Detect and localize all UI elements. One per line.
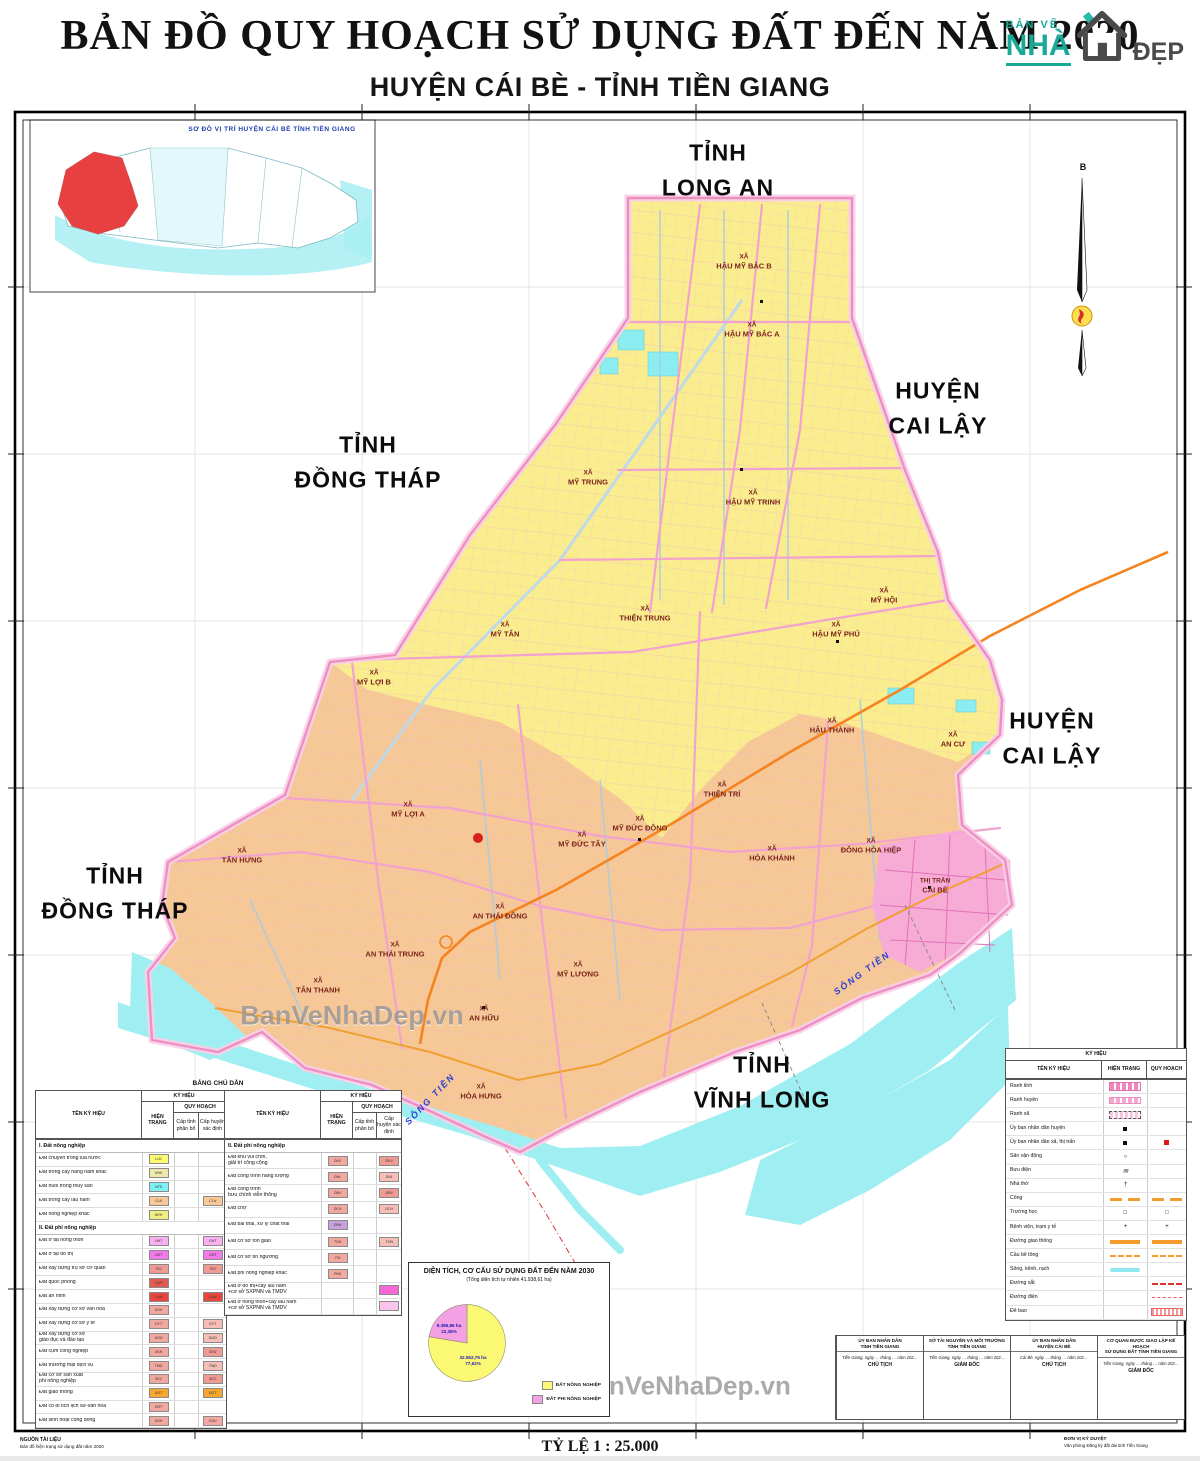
pie-legend-nonagri: ĐẤT PHI NÔNG NGHIỆP: [532, 1395, 601, 1404]
footer-right: ĐƠN VỊ KÝ DUYỆT Văn phòng Đăng ký đất đa…: [1064, 1437, 1182, 1448]
symbol-row: Ủy ban nhân dân xã, thị trấn: [1006, 1136, 1186, 1150]
page-bottom-strip: [0, 1456, 1200, 1461]
watermark-map: BanVeNhaDep.vn: [240, 1001, 464, 1032]
legend-row: Đất nuôi trồng thủy sản NTS NTS: [36, 1181, 226, 1195]
region-label: TỈNH VĨNH LONG: [694, 1048, 831, 1117]
map-scale: TỶ LỆ 1 : 25.000: [0, 1438, 1200, 1456]
symbol-row: Đường giao thông: [1006, 1235, 1186, 1249]
agri-swatch: [542, 1381, 553, 1390]
chart-title: DIỆN TÍCH, CƠ CẤU SỬ DỤNG ĐẤT ĐẾN NĂM 20…: [409, 1268, 609, 1275]
legend-row: Đất thương mại dịch vụ TMD TMD: [36, 1359, 226, 1373]
legend-row: Đất giao thông DGT DGT: [36, 1387, 226, 1401]
legend-row: Đất ở tại nông thôn ONT ONT: [36, 1235, 226, 1249]
legend-caption: BẢNG CHÚ DẪN: [193, 1080, 244, 1087]
symbol-row: Đê bao: [1006, 1306, 1186, 1320]
symbol-row: Ranh huyện: [1006, 1094, 1186, 1108]
chart-subtitle: (Tổng diện tích tự nhiên 41.938,61 ha): [409, 1277, 609, 1283]
symbol-row: Ranh tỉnh: [1006, 1080, 1186, 1094]
legend-row: Đất chuyên trồng lúa nước LUC LUC: [36, 1153, 226, 1167]
legend-row: Đất công trình bưu chính viễn thông DBV …: [225, 1185, 401, 1201]
symbols-table: KÝ HIỆU TÊN KÝ HIỆU HIỆN TRẠNG QUY HOẠCH…: [1005, 1048, 1187, 1321]
signature-block: SỞ TÀI NGUYÊN VÀ MÔI TRƯỜNG TỈNH TIỀN GI…: [923, 1336, 1010, 1419]
legend-row: Đất ở đô thị+cây lâu năm +cơ sở SXPNN và…: [225, 1283, 401, 1299]
signature-block: ỦY BAN NHÂN DÂN HUYỆN CÁI BÈ Cái Bè, ngà…: [1010, 1336, 1097, 1419]
legend-row: Đất phi nông nghiệp khác PNK PNK: [225, 1266, 401, 1282]
symbol-row: Cầu bê tông: [1006, 1249, 1186, 1263]
signature-block: ỦY BAN NHÂN DÂN TỈNH TIỀN GIANG Tiền Gia…: [836, 1336, 923, 1419]
legend-row: Đất trồng cây hàng năm khác HNK HNK: [36, 1167, 226, 1181]
legend-row: Đất cơ sở sản xuất phi nông nghiệp SKC S…: [36, 1373, 226, 1387]
legend-row: Đất cơ sở tôn giáo TON TON: [225, 1234, 401, 1250]
symbol-row: Bệnh viện, trạm y tế + +: [1006, 1221, 1186, 1235]
legend-row: Đất khu vui chơi, giải trí công cộng DKV…: [225, 1153, 401, 1169]
legend-row: Đất an ninh CAN CAN: [36, 1290, 226, 1304]
symbol-row: Đường sắt: [1006, 1277, 1186, 1291]
legend-row: Đất ở nông thôn+cây lâu năm +cơ sở SXPNN…: [225, 1299, 401, 1315]
legend-row: Đất cụm công nghiệp SKN SKN: [36, 1345, 226, 1359]
symbol-row: Đường điện: [1006, 1291, 1186, 1305]
legend-table-1: TÊN KÝ HIỆU KÝ HIỆU HIỆN TRẠNG QUY HOẠCH…: [35, 1090, 227, 1429]
region-label: HUYỆN CAI LẬY: [889, 374, 988, 443]
north-arrow-icon: [1072, 178, 1092, 376]
north-label: B: [1080, 162, 1087, 172]
legend-table-2: TÊN KÝ HIỆU KÝ HIỆU HIỆN TRẠNG QUY HOẠCH…: [224, 1090, 402, 1316]
inset-map: [30, 120, 375, 292]
legend-row: Đất ở tại đô thị ODT ODT: [36, 1249, 226, 1263]
region-label: HUYỆN CAI LẬY: [1003, 704, 1102, 773]
river-label: SÔNG TIỀN: [396, 1089, 464, 1107]
red-landmark: [473, 833, 483, 843]
legend-row: Đất quốc phòng CQP CQP: [36, 1276, 226, 1290]
region-label: TỈNH LONG AN: [662, 136, 774, 205]
legend-row: Đất nông nghiệp khác NKH NKH: [36, 1208, 226, 1222]
legend-row: Đất trồng cây lâu năm CLN CLN: [36, 1194, 226, 1208]
legend-section-title: II. Đất phi nông nghiệp: [225, 1140, 401, 1153]
legend-row: Đất sinh hoạt cộng đồng DSH DSH: [36, 1414, 226, 1428]
river-label: SÔNG TIỀN: [828, 963, 896, 981]
symbol-row: Nhà thờ †: [1006, 1179, 1186, 1193]
pie-chart: [419, 1295, 515, 1391]
pie-label-nonagri: 9.385,86 ha 22,38%: [427, 1323, 471, 1335]
pie-legend-agri: ĐẤT NÔNG NGHIỆP: [542, 1381, 601, 1390]
signature-blocks: ỦY BAN NHÂN DÂN TỈNH TIỀN GIANG Tiền Gia…: [835, 1335, 1185, 1420]
symbol-row: Bưu điện ✉: [1006, 1165, 1186, 1179]
legend-row: Đất xây dựng cơ sở văn hóa DVH DVH: [36, 1304, 226, 1318]
symbol-row: Sông, kênh, rạch: [1006, 1263, 1186, 1277]
nonagri-swatch: [532, 1395, 543, 1404]
legend-section-title: II. Đất phi nông nghiệp: [36, 1222, 226, 1235]
signature-block: CƠ QUAN ĐƯỢC GIAO LẬP KẾ HOẠCH SỬ DỤNG Đ…: [1097, 1336, 1184, 1419]
region-label: TỈNH ĐỒNG THÁP: [295, 428, 442, 497]
region-label: TỈNH ĐỒNG THÁP: [42, 859, 189, 928]
legend-row: Đất công trình năng lượng DNL DNL: [225, 1169, 401, 1185]
legend-row: Đất xây dựng cơ sở y tế DYT DYT: [36, 1318, 226, 1332]
legend-row: Đất có di tích lịch sử-văn hóa DDT DDT: [36, 1401, 226, 1415]
pie-label-agri: 32.552,75 ha 77,62%: [451, 1355, 495, 1367]
symbol-row: Trường học □ □: [1006, 1207, 1186, 1221]
legend-row: Đất cơ sở tín ngưỡng TIN TIN: [225, 1250, 401, 1266]
symbol-row: Ranh xã: [1006, 1108, 1186, 1122]
legend-section-title: I. Đất nông nghiệp: [36, 1140, 226, 1153]
symbol-row: Sân vận động ○: [1006, 1150, 1186, 1164]
legend-row: Đất xây dựng cơ sở giáo dục và đào tạo D…: [36, 1332, 226, 1346]
legend-row: Đất chợ DCH DCH: [225, 1202, 401, 1218]
legend-row: Đất xây dựng trụ sở cơ quan TSC TSC: [36, 1263, 226, 1277]
symbol-row: Cống: [1006, 1193, 1186, 1207]
symbol-row: Ủy ban nhân dân huyện: [1006, 1122, 1186, 1136]
land-structure-chart: DIỆN TÍCH, CƠ CẤU SỬ DỤNG ĐẤT ĐẾN NĂM 20…: [408, 1262, 610, 1417]
inset-map-title: SƠ ĐỒ VỊ TRÍ HUYỆN CÁI BÈ TỈNH TIỀN GIAN…: [142, 126, 402, 133]
legend-row: Đất bãi thải, xử lý chất thải DRA DRA: [225, 1218, 401, 1234]
